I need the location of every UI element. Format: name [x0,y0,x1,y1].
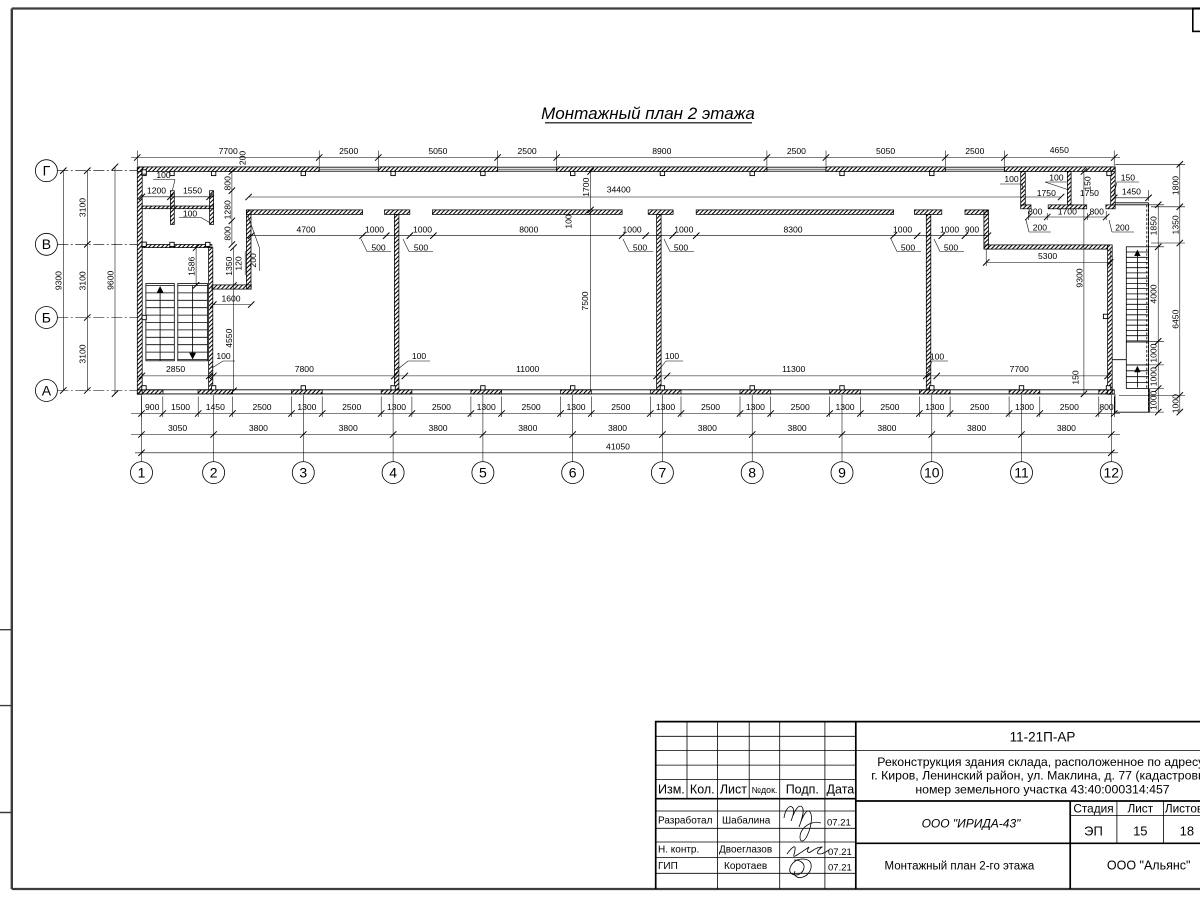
svg-text:8000: 8000 [519,225,538,235]
svg-text:3800: 3800 [249,423,268,433]
svg-text:200: 200 [1115,223,1130,233]
svg-text:3800: 3800 [339,423,358,433]
svg-text:800: 800 [1090,207,1105,217]
svg-text:Лист: Лист [1127,801,1153,815]
svg-text:6: 6 [569,465,577,481]
svg-text:41050: 41050 [606,442,630,452]
svg-text:1200: 1200 [147,186,166,196]
svg-text:900: 900 [965,225,980,235]
svg-text:ООО "ИРИДА-43": ООО "ИРИДА-43" [922,817,1022,831]
svg-text:07.21: 07.21 [827,818,851,829]
svg-text:А: А [42,382,52,398]
svg-text:1000: 1000 [1149,391,1159,410]
svg-text:1450: 1450 [1122,187,1141,197]
svg-text:1300: 1300 [566,402,585,412]
svg-text:3100: 3100 [78,198,88,217]
svg-text:1000: 1000 [623,225,642,235]
svg-text:800: 800 [222,226,232,241]
svg-text:3800: 3800 [788,423,807,433]
svg-text:ООО "Альянс": ООО "Альянс" [1107,859,1191,873]
svg-text:100: 100 [1049,173,1064,183]
svg-text:1300: 1300 [835,402,854,412]
svg-text:1350: 1350 [1170,215,1180,234]
svg-text:1550: 1550 [183,186,202,196]
svg-text:Монтажный план 2 этажа: Монтажный план 2 этажа [541,104,755,123]
svg-text:Листов: Листов [1165,801,1200,815]
svg-text:6450: 6450 [1170,309,1180,328]
svg-text:2: 2 [210,465,218,481]
svg-text:1700: 1700 [1058,207,1077,217]
svg-text:№док.: №док. [752,785,778,795]
svg-text:150: 150 [1121,173,1136,183]
svg-text:1350: 1350 [224,256,234,275]
svg-text:г. Киров, Ленинский район, ул.: г. Киров, Ленинский район, ул. Маклина, … [871,769,1200,783]
svg-text:11300: 11300 [782,364,805,374]
svg-text:1750: 1750 [1080,188,1099,198]
svg-text:Стадия: Стадия [1073,801,1113,815]
svg-text:11-21П-АР: 11-21П-АР [1010,729,1076,744]
svg-text:1000: 1000 [674,225,693,235]
svg-text:200: 200 [248,253,258,268]
svg-text:4000: 4000 [1149,284,1159,303]
svg-text:2500: 2500 [432,402,451,412]
svg-text:1: 1 [138,465,146,481]
svg-text:2500: 2500 [522,402,541,412]
svg-text:100: 100 [1004,174,1019,184]
svg-text:Разработал: Разработал [658,815,713,827]
svg-text:2500: 2500 [787,146,806,156]
svg-text:100: 100 [564,214,574,229]
svg-text:1700: 1700 [581,177,591,196]
svg-text:2500: 2500 [339,146,358,156]
svg-text:9600: 9600 [105,271,115,290]
svg-text:3800: 3800 [1057,423,1076,433]
svg-text:1000: 1000 [940,225,959,235]
svg-text:3050: 3050 [168,423,187,433]
svg-text:500: 500 [901,243,916,253]
svg-text:9300: 9300 [1074,268,1084,287]
svg-text:В: В [42,236,51,252]
svg-text:ЭП: ЭП [1084,824,1103,839]
svg-text:500: 500 [633,243,648,253]
svg-text:2500: 2500 [965,146,984,156]
svg-text:800: 800 [1099,402,1114,412]
svg-text:3100: 3100 [78,271,88,290]
svg-text:4700: 4700 [296,225,315,235]
svg-text:1300: 1300 [925,402,944,412]
svg-text:1000: 1000 [413,225,432,235]
svg-text:3800: 3800 [608,423,627,433]
svg-text:07.21: 07.21 [828,863,852,874]
svg-text:3800: 3800 [967,423,986,433]
svg-text:1000: 1000 [365,225,384,235]
svg-text:1586: 1586 [187,257,197,276]
svg-text:200: 200 [238,151,248,166]
svg-text:Лист: Лист [720,783,747,797]
svg-text:1450: 1450 [206,402,225,412]
svg-text:100: 100 [412,351,427,361]
svg-text:9: 9 [838,465,846,481]
svg-text:7800: 7800 [295,364,314,374]
svg-text:Изм.: Изм. [658,783,685,797]
svg-text:1300: 1300 [297,402,316,412]
svg-text:Коротаев: Коротаев [724,861,767,872]
svg-text:800: 800 [1028,207,1043,217]
svg-text:1000: 1000 [1149,343,1159,362]
svg-text:2500: 2500 [701,402,720,412]
svg-text:500: 500 [674,243,689,253]
svg-text:1300: 1300 [1015,402,1034,412]
svg-text:2500: 2500 [791,402,810,412]
svg-text:100: 100 [665,351,680,361]
svg-text:Н. контр.: Н. контр. [658,845,699,856]
svg-text:Шабалина: Шабалина [722,815,771,827]
svg-text:3800: 3800 [877,423,896,433]
svg-text:ГИП: ГИП [658,861,678,872]
svg-text:11: 11 [1014,465,1029,481]
svg-text:7700: 7700 [219,146,238,156]
svg-text:1280: 1280 [222,200,232,219]
svg-text:1300: 1300 [387,402,406,412]
svg-text:2850: 2850 [166,364,185,374]
svg-text:150: 150 [1071,370,1081,385]
svg-text:100: 100 [930,352,945,362]
svg-text:3: 3 [299,465,307,481]
svg-text:100: 100 [183,209,198,219]
svg-text:3100: 3100 [78,344,88,363]
svg-text:5050: 5050 [428,146,447,156]
svg-text:3800: 3800 [698,423,717,433]
svg-text:9300: 9300 [54,271,64,290]
svg-text:3800: 3800 [518,423,537,433]
svg-text:Реконструкция здания склада, р: Реконструкция здания склада, расположенн… [877,755,1200,769]
svg-text:2500: 2500 [611,402,630,412]
svg-text:1500: 1500 [171,402,190,412]
svg-text:4550: 4550 [224,328,234,347]
svg-text:5050: 5050 [876,146,895,156]
svg-text:1800: 1800 [1170,176,1180,195]
svg-text:Подп.: Подп. [786,783,819,797]
svg-text:2500: 2500 [252,402,271,412]
svg-text:1300: 1300 [477,402,496,412]
svg-text:500: 500 [944,243,959,253]
svg-text:2500: 2500 [880,402,899,412]
svg-text:1300: 1300 [656,402,675,412]
svg-text:1000: 1000 [893,225,912,235]
svg-text:800: 800 [222,176,232,191]
svg-text:3800: 3800 [428,423,447,433]
svg-text:Кол.: Кол. [690,783,715,797]
svg-text:1000: 1000 [1170,394,1180,413]
svg-text:Монтажный план 2-го этажа: Монтажный план 2-го этажа [885,860,1035,872]
svg-text:5300: 5300 [1038,251,1057,261]
svg-text:500: 500 [414,243,429,253]
svg-text:8: 8 [748,465,756,481]
svg-text:8300: 8300 [783,225,802,235]
svg-text:Двоеглазов: Двоеглазов [719,845,772,856]
svg-text:1750: 1750 [1037,188,1056,198]
svg-text:2500: 2500 [1060,402,1079,412]
svg-text:07.21: 07.21 [828,847,852,858]
svg-text:900: 900 [145,402,160,412]
svg-text:15: 15 [1133,824,1147,839]
svg-text:120: 120 [234,256,244,271]
svg-text:2500: 2500 [342,402,361,412]
svg-text:7: 7 [659,465,667,481]
svg-text:200: 200 [1033,223,1048,233]
svg-text:7700: 7700 [1010,364,1029,374]
svg-text:4650: 4650 [1050,145,1069,155]
svg-text:7500: 7500 [580,291,590,310]
svg-text:1850: 1850 [1149,216,1159,235]
svg-text:Б: Б [42,309,51,325]
svg-text:4: 4 [389,465,397,481]
svg-text:1600: 1600 [221,294,240,304]
svg-text:500: 500 [371,243,386,253]
svg-text:10: 10 [924,465,940,481]
svg-text:Дата: Дата [827,783,855,797]
svg-text:5: 5 [479,465,487,481]
svg-text:2500: 2500 [518,146,537,156]
svg-text:100: 100 [216,351,231,361]
svg-text:34400: 34400 [607,185,631,195]
svg-text:1300: 1300 [746,402,765,412]
svg-text:1000: 1000 [1149,367,1159,386]
svg-text:2500: 2500 [970,402,989,412]
svg-text:18: 18 [1180,824,1194,839]
svg-text:Г: Г [43,163,51,179]
svg-text:12: 12 [1104,465,1120,481]
svg-text:8900: 8900 [652,146,671,156]
svg-text:11000: 11000 [516,364,539,374]
svg-text:номер земельного участка 43:40: номер земельного участка 43:40:000314:45… [915,782,1169,796]
svg-text:100: 100 [156,170,171,180]
